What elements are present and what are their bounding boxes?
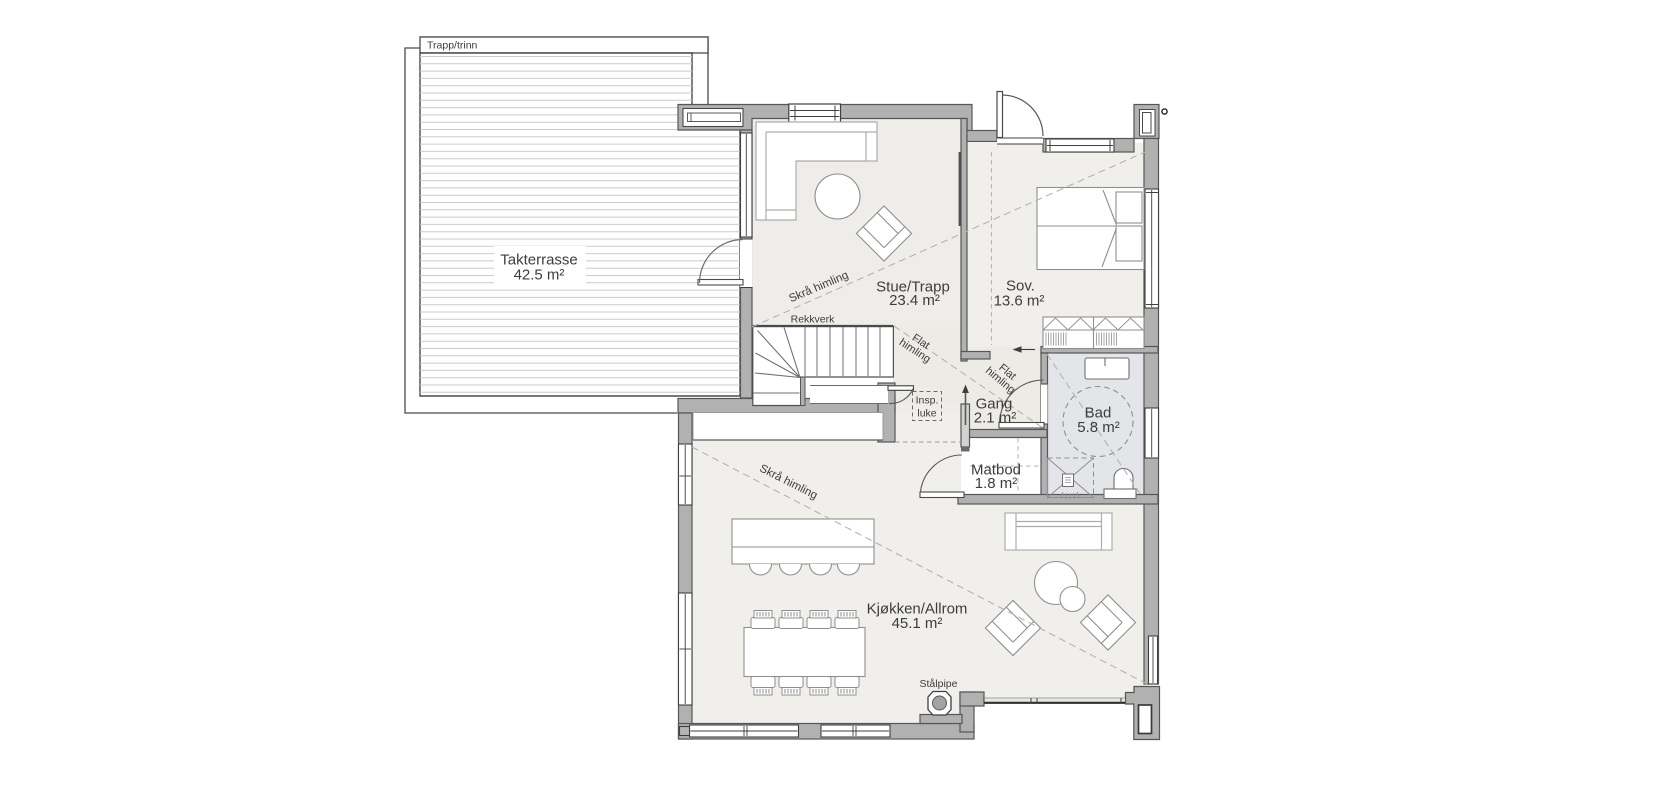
svg-text:Trapp/trinn: Trapp/trinn: [427, 40, 478, 52]
svg-text:45.1 m²: 45.1 m²: [892, 615, 943, 632]
svg-text:2.1 m²: 2.1 m²: [974, 410, 1017, 427]
svg-text:Insp.: Insp.: [916, 395, 939, 407]
svg-text:42.5 m²: 42.5 m²: [514, 267, 565, 284]
svg-text:5.8 m²: 5.8 m²: [1077, 419, 1120, 436]
svg-text:Rekkverk: Rekkverk: [791, 314, 836, 326]
svg-text:Stålpipe: Stålpipe: [920, 678, 958, 690]
svg-text:luke: luke: [917, 408, 936, 420]
svg-text:1.8 m²: 1.8 m²: [975, 475, 1018, 492]
svg-text:13.6 m²: 13.6 m²: [994, 293, 1045, 310]
svg-text:23.4 m²: 23.4 m²: [889, 292, 940, 309]
